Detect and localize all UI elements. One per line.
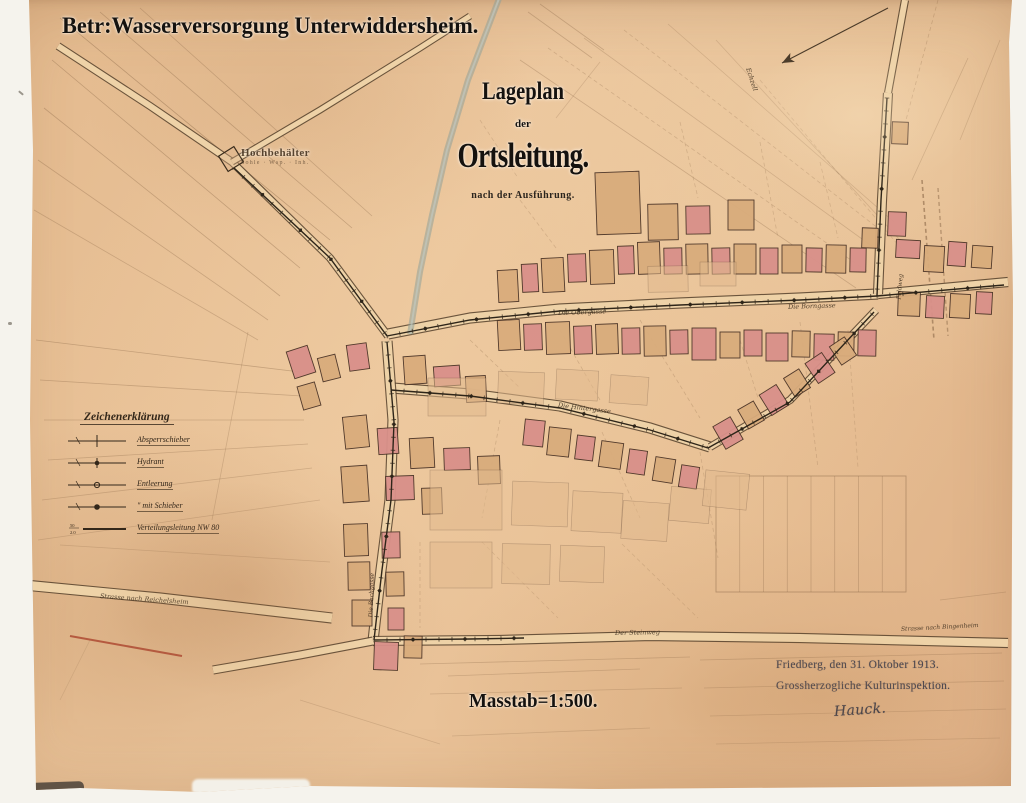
building: [374, 642, 399, 671]
building: [626, 449, 647, 475]
service-tick: [484, 396, 485, 401]
hydrant-dot: [629, 306, 632, 309]
annotation-arrow: [782, 8, 888, 63]
water-main: [234, 168, 387, 336]
legend-item-label: Hydrant: [137, 457, 164, 468]
building: [568, 254, 587, 283]
signature-block: Friedberg, den 31. Oktober 1913. Grosshe…: [776, 655, 950, 722]
legend: Zeichenerklärung AbsperrschieberHydrantE…: [66, 407, 244, 535]
building: [925, 296, 944, 319]
building: [766, 333, 788, 361]
building: [598, 441, 623, 470]
main-symbol-icon: 502.0: [66, 520, 130, 536]
building: [728, 200, 754, 230]
service-tick: [382, 549, 387, 550]
road: [888, 0, 905, 93]
parcel-line: [680, 122, 698, 198]
place-date: Friedberg, den 31. Oktober 1913.: [776, 655, 950, 676]
valve-symbol-icon: [66, 432, 130, 448]
hydrant-symbol-icon: [66, 454, 130, 470]
parcel-block: [609, 375, 649, 406]
parcel-block: [702, 470, 750, 510]
parcel-line: [60, 545, 330, 562]
hydrant-dot: [512, 636, 515, 639]
arrow-head: [782, 53, 795, 63]
legend-item: " mit Schieber: [66, 499, 244, 513]
parcel-line: [912, 58, 968, 180]
building: [317, 354, 340, 382]
building: [692, 328, 716, 360]
building: [892, 122, 909, 145]
building: [497, 319, 521, 350]
paper-tear: [192, 779, 310, 795]
hydrant-dot: [411, 638, 414, 641]
parcel-line: [906, 0, 938, 120]
hydrant-dot: [883, 135, 886, 138]
hochbehaelter-name: Hochbehälter: [241, 147, 310, 159]
service-tick: [373, 629, 378, 630]
service-tick: [381, 562, 386, 563]
hydrant-dot: [428, 391, 431, 394]
building: [297, 382, 321, 410]
service-tick: [379, 578, 384, 579]
road: [213, 641, 373, 670]
parcel-line: [960, 40, 1000, 140]
building: [574, 326, 593, 355]
hydrant-dot: [389, 379, 392, 382]
building: [744, 330, 762, 356]
building: [286, 345, 316, 378]
parcel-block: [648, 266, 688, 293]
hydrant-dot: [633, 424, 636, 427]
legend-item: Entleerung: [66, 477, 244, 491]
hydrant-dot: [689, 303, 692, 306]
building: [782, 245, 802, 273]
parcel-block: [555, 369, 599, 401]
hydrant-dot: [475, 318, 478, 321]
parcel-line: [448, 669, 640, 676]
svg-text:2.0: 2.0: [70, 530, 76, 535]
building: [388, 608, 404, 630]
hydrant-dot: [392, 423, 395, 426]
parcel-block: [700, 262, 736, 286]
hydrant-dot: [470, 394, 473, 397]
building: [947, 241, 967, 266]
hydrant-dot: [390, 475, 393, 478]
hydrant-dot: [817, 370, 820, 373]
building: [644, 326, 667, 356]
building: [923, 245, 944, 272]
service-tick: [548, 404, 549, 409]
building: [346, 343, 369, 372]
building: [343, 524, 368, 557]
building: [858, 330, 876, 356]
building: [341, 465, 369, 503]
street-label: Die Obergasse: [558, 307, 606, 317]
building: [523, 419, 546, 447]
street-label: Der Steinweg: [615, 628, 660, 637]
hydrant-dot: [378, 589, 381, 592]
legend-item: Hydrant: [66, 455, 244, 469]
scale-label: Masstab=1:500.: [469, 690, 598, 713]
document-subject: Betr:Wasserversorgung Unterwiddersheim.: [62, 13, 478, 39]
building: [342, 415, 369, 449]
building: [622, 328, 640, 354]
map-sheet: Betr:Wasserversorgung Unterwiddersheim. …: [0, 0, 1026, 803]
dot-symbol-icon: [66, 498, 130, 514]
service-tick: [376, 603, 381, 604]
building: [497, 269, 519, 302]
hydrant-dot: [521, 401, 524, 404]
building: [686, 206, 710, 234]
road-casing: [58, 46, 388, 336]
building: [850, 248, 866, 272]
building: [826, 245, 846, 273]
parcel-line: [520, 200, 556, 248]
service-tick: [387, 510, 392, 511]
road: [58, 46, 388, 336]
service-tick: [386, 523, 391, 524]
hydrant-dot: [792, 299, 795, 302]
building: [888, 212, 907, 237]
map-subtitle: nach der Ausführung.: [437, 190, 609, 201]
hydrant-dot: [740, 427, 743, 430]
map-title-lageplan: Lageplan: [452, 78, 593, 106]
building: [760, 248, 778, 274]
building: [386, 572, 404, 596]
parcel-block: [430, 542, 492, 588]
parcel-line: [540, 4, 604, 50]
hydrant-dot: [424, 327, 427, 330]
service-tick: [497, 397, 498, 402]
hydrant-dot: [463, 637, 466, 640]
hydrant-dot: [527, 312, 530, 315]
scanner-speck: [18, 90, 24, 95]
legend-title: Zeichenerklärung: [80, 411, 174, 425]
building: [734, 244, 756, 274]
legend-items: AbsperrschieberHydrantEntleerung" mit Sc…: [66, 433, 244, 535]
title-block: Lageplan der Ortsleitung. nach der Ausfü…: [437, 78, 609, 201]
building: [595, 324, 618, 355]
parcel-line: [34, 210, 258, 340]
building: [975, 292, 992, 315]
hydrant-dot: [329, 258, 332, 261]
legend-item: Absperrschieber: [66, 433, 244, 447]
parcel-block: [502, 544, 551, 585]
parcel-line: [452, 728, 650, 736]
hydrant-dot: [360, 300, 363, 303]
hydrant-dot: [582, 412, 585, 415]
drain-symbol-icon: [66, 476, 130, 492]
hydrant-dot: [843, 296, 846, 299]
parcel-line: [940, 592, 1006, 600]
building: [403, 355, 427, 384]
parcel-block: [621, 500, 670, 541]
parcel-line: [38, 160, 268, 320]
building: [862, 228, 879, 249]
building: [545, 322, 570, 355]
parcel-block: [511, 481, 569, 527]
hydrant-dot: [786, 402, 789, 405]
legend-item-label: Absperrschieber: [137, 435, 190, 446]
parcel-line: [40, 380, 302, 396]
parcel-block: [571, 491, 623, 534]
service-tick: [510, 399, 511, 404]
parcel-line: [60, 640, 90, 700]
building: [524, 324, 543, 351]
building: [678, 465, 699, 490]
hydrant-dot: [852, 332, 855, 335]
building: [648, 204, 679, 241]
parcel-line: [622, 544, 698, 618]
hydrant-dot: [740, 301, 743, 304]
parcel-block: [430, 470, 502, 530]
parcel-block: [559, 545, 604, 583]
parcel-line: [420, 657, 690, 664]
scanner-speck: [8, 322, 12, 325]
building: [547, 427, 572, 457]
building: [792, 331, 810, 357]
building: [444, 448, 471, 471]
legend-item-label: " mit Schieber: [137, 501, 183, 512]
scanner-background: Betr:Wasserversorgung Unterwiddersheim. …: [0, 0, 1026, 803]
service-tick: [374, 616, 379, 617]
parcel-line: [300, 700, 440, 744]
parcel-line: [36, 340, 300, 372]
hydrant-dot: [299, 229, 302, 232]
hydrant-dot: [966, 286, 969, 289]
building: [521, 264, 538, 293]
service-tick: [535, 402, 536, 407]
parcel-line: [820, 162, 838, 238]
building: [575, 435, 596, 461]
parcel-line: [528, 12, 592, 58]
hochbehaelter-note: Sohle · Wsp. · Inh.: [241, 160, 310, 166]
legend-item: 502.0Verteilungsleitung NW 80: [66, 521, 244, 535]
svg-text:50: 50: [70, 523, 75, 528]
hydrant-dot: [385, 535, 388, 538]
building: [589, 250, 614, 285]
building: [720, 332, 740, 358]
hydrant-dot: [880, 187, 883, 190]
map-title-der: der: [437, 118, 609, 130]
parcel-line: [100, 12, 352, 228]
building: [541, 257, 565, 292]
signature: Hauck.: [833, 692, 951, 725]
hochbehaelter-label: Hochbehälter Sohle · Wsp. · Inh.: [241, 147, 310, 166]
building: [896, 239, 921, 258]
hydrant-dot: [877, 248, 880, 251]
building: [971, 245, 992, 268]
legend-item-label: Verteilungsleitung NW 80: [137, 523, 219, 534]
legend-item-label: Entleerung: [137, 479, 173, 490]
building: [348, 562, 370, 590]
hydrant-dot: [676, 437, 679, 440]
building: [386, 476, 415, 501]
building: [806, 248, 822, 272]
parcel-line: [716, 738, 1000, 744]
building: [652, 457, 676, 484]
map-title-ortsleitung: Ortsleitung.: [456, 136, 590, 176]
hydrant-dot: [261, 193, 264, 196]
street-label: Die Borngasse: [788, 301, 836, 311]
corner-smudge: [30, 781, 84, 795]
building: [409, 437, 435, 468]
parcel-line: [760, 142, 778, 238]
parcel-block: [497, 371, 544, 405]
hydrant-dot: [914, 291, 917, 294]
building: [377, 427, 399, 454]
building: [670, 330, 688, 354]
building: [618, 246, 635, 275]
building: [949, 293, 970, 318]
